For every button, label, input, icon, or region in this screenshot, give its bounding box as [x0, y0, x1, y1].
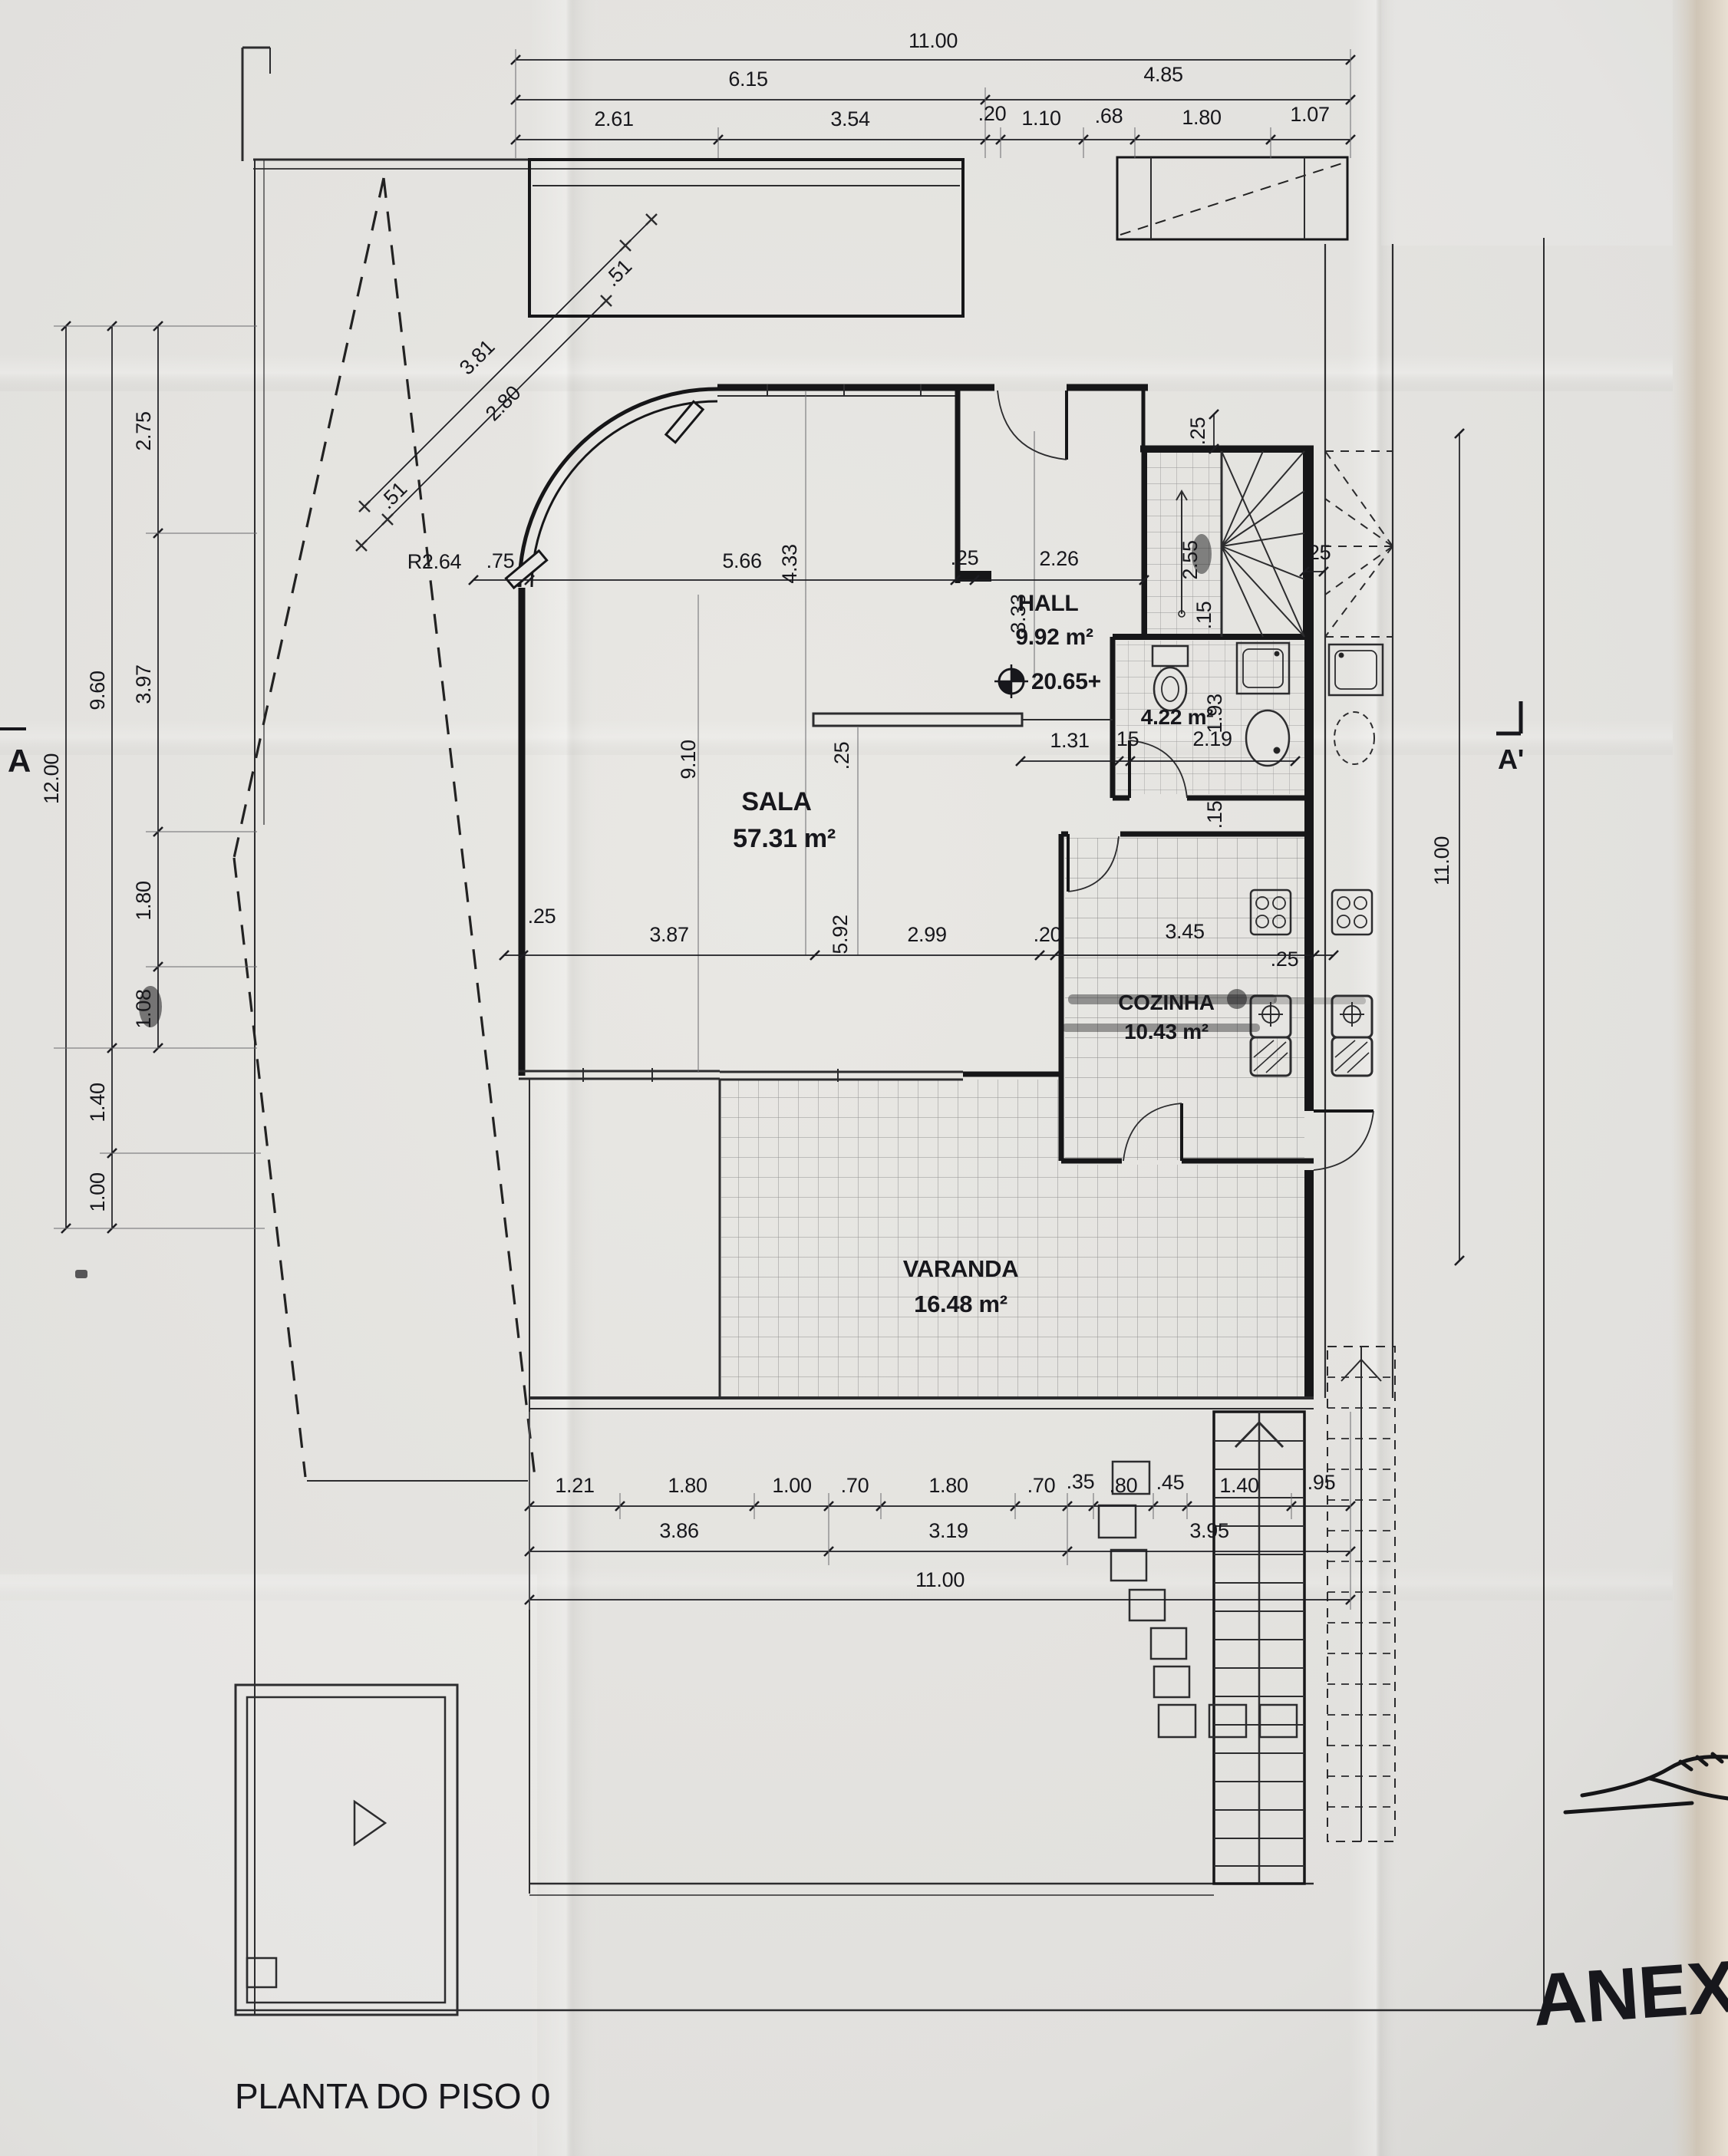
dim-b1-a: 1.21	[555, 1474, 594, 1497]
dim-b1-d: .70	[841, 1474, 869, 1497]
dim-b2-c: 3.95	[1189, 1519, 1228, 1542]
room-label-sala: SALA	[741, 787, 811, 816]
dim-left-mid-b: 1.40	[86, 1083, 109, 1122]
level-value: 20.65+	[1031, 669, 1101, 694]
dim-radius: R2.64	[407, 550, 462, 573]
level-marker: 20.65+	[994, 664, 1101, 698]
dim-wc-a: 1.31	[1050, 729, 1089, 752]
section-marker-left: A	[8, 743, 31, 779]
dim-right-total: 11.00	[1430, 836, 1453, 885]
dim-left-mid-a: 9.60	[86, 671, 109, 710]
dim-b1-g: .35	[1067, 1470, 1095, 1493]
dim-vert-a: 4.33	[778, 544, 801, 583]
dim-top3-c: .20	[978, 102, 1007, 125]
dim-rowa-a: .75	[486, 549, 515, 572]
dim-left-inner-b: 3.97	[132, 664, 155, 704]
dim-b1-h: .80	[1110, 1474, 1138, 1497]
dim-b2-a: 3.86	[659, 1519, 698, 1542]
dim-b1-c: 1.00	[772, 1474, 811, 1497]
dim-left-inner-a: 2.75	[132, 411, 155, 450]
section-marker-right: A'	[1498, 743, 1524, 775]
dim-mid-rightwall: .25	[1271, 948, 1299, 971]
dim-b1-k: .95	[1308, 1471, 1336, 1494]
dim-bottom-total: 11.00	[915, 1568, 965, 1591]
dim-rowa-c: .25	[951, 546, 979, 569]
dim-top3-f: 1.80	[1182, 106, 1221, 129]
paper-right-edge	[1671, 0, 1728, 2156]
dim-b1-j: 1.40	[1219, 1474, 1258, 1497]
dim-left-mid-c: 1.00	[86, 1172, 109, 1212]
dim-b2-b: 3.19	[928, 1519, 968, 1542]
dim-wc-b: .15	[1111, 727, 1139, 750]
room-label-varanda: VARANDA	[903, 1255, 1019, 1282]
dim-stair-tread: .15	[1192, 602, 1215, 630]
floor-plan-svg: 11.00 6.15 4.85 2.61 3.54 .20 1.10 .68 1…	[0, 0, 1728, 2156]
dim-mid-a: 3.87	[649, 923, 688, 946]
dim-mid-c: .20	[1034, 923, 1062, 946]
dim-vert-e: 5.92	[829, 915, 852, 954]
dim-top3-a: 2.61	[594, 107, 633, 130]
dim-top-total: 11.00	[909, 29, 958, 52]
dim-top3-g: 1.07	[1290, 103, 1329, 126]
scanned-floor-plan-photo: 11.00 6.15 4.85 2.61 3.54 .20 1.10 .68 1…	[0, 0, 1728, 2156]
dim-top3-d: 1.10	[1021, 107, 1060, 130]
dim-rowa-right: .25	[1303, 541, 1331, 564]
room-area-varanda: 16.48 m²	[914, 1291, 1007, 1317]
dim-mid-b: 2.99	[907, 923, 946, 946]
dim-rowa-d: 2.26	[1039, 547, 1078, 570]
dim-b1-b: 1.80	[668, 1474, 707, 1497]
room-area-hall: 9.92 m²	[1015, 625, 1093, 650]
dim-left-inner-c: 1.80	[132, 881, 155, 920]
dim-top3-e: .68	[1095, 104, 1123, 127]
plan-title: PLANTA DO PISO 0	[235, 2076, 550, 2116]
room-area-sala: 57.31 m²	[733, 824, 836, 853]
dim-top2-a: 6.15	[728, 68, 767, 91]
washbasin	[1246, 710, 1289, 766]
room-area-bathroom: 4.22 m²	[1141, 705, 1213, 729]
dim-mid-leftwall: .25	[528, 905, 556, 928]
dim-top3-b: 3.54	[830, 107, 870, 130]
dim-b1-e: 1.80	[928, 1474, 968, 1497]
room-label-hall: HALL	[1018, 591, 1079, 616]
dim-wc-v-b: .15	[1203, 801, 1226, 829]
dim-vert-c: 9.10	[677, 740, 700, 779]
dim-mid-d: 3.45	[1165, 920, 1204, 943]
dim-vert-d: .25	[830, 742, 853, 770]
dim-b1-f: .70	[1027, 1474, 1056, 1497]
dim-b1-i: .45	[1156, 1471, 1185, 1494]
dim-rowa-b: 5.66	[722, 549, 761, 572]
dim-left-outer: 12.00	[40, 753, 63, 804]
dim-top2-b: 4.85	[1143, 63, 1182, 86]
dim-stair-top: .25	[1186, 417, 1209, 446]
toilet	[1153, 646, 1188, 710]
